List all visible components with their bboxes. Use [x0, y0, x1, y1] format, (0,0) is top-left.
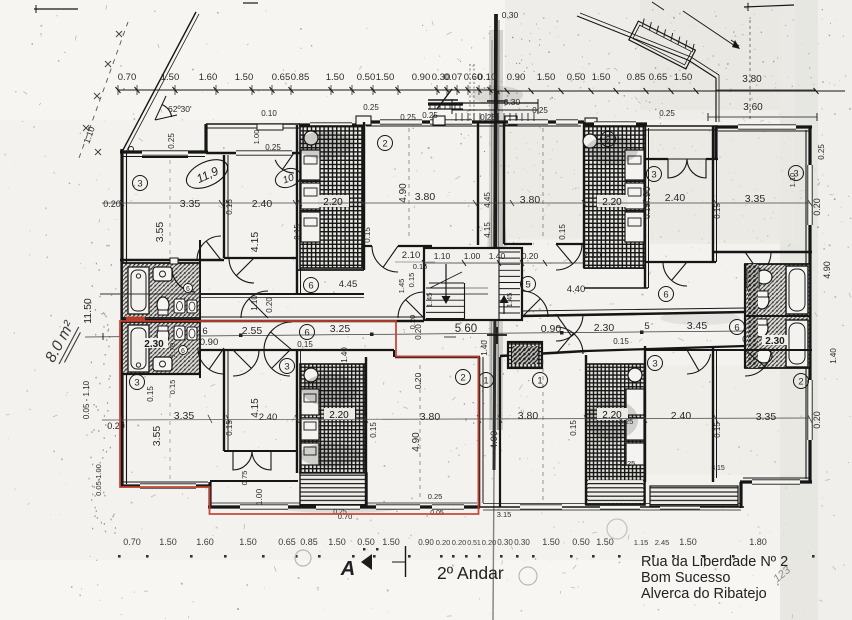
svg-text:0.20: 0.20 [265, 297, 274, 313]
svg-text:5: 5 [525, 280, 530, 291]
svg-text:1.50: 1.50 [328, 537, 346, 547]
svg-text:0.20: 0.20 [812, 198, 822, 216]
svg-text:3.15: 3.15 [497, 510, 512, 519]
svg-text:0.20: 0.20 [107, 421, 125, 431]
svg-text:1.00: 1.00 [464, 251, 481, 261]
svg-text:4.90: 4.90 [489, 431, 500, 450]
svg-text:0.15: 0.15 [613, 337, 629, 346]
svg-text:2.45: 2.45 [655, 538, 670, 547]
svg-text:6: 6 [202, 326, 207, 337]
svg-text:0.30: 0.30 [504, 97, 521, 107]
svg-text:0.50: 0.50 [567, 72, 586, 83]
svg-text:0.25: 0.25 [167, 133, 176, 149]
svg-text:0.15: 0.15 [225, 199, 234, 215]
svg-text:1.40: 1.40 [480, 340, 489, 356]
svg-text:3.35: 3.35 [174, 410, 195, 422]
svg-text:0.90: 0.90 [200, 337, 219, 348]
svg-text:2.30: 2.30 [594, 322, 615, 334]
svg-text:0.90: 0.90 [412, 72, 431, 83]
svg-text:3.80: 3.80 [742, 74, 762, 85]
svg-text:0.30: 0.30 [502, 10, 519, 20]
svg-text:3.45: 3.45 [687, 320, 708, 332]
svg-text:2.40: 2.40 [665, 192, 686, 204]
svg-text:Rua da Liberdade Nº 2: Rua da Liberdade Nº 2 [641, 554, 788, 570]
svg-text:2.30: 2.30 [144, 339, 164, 350]
svg-text:1.10: 1.10 [434, 251, 451, 261]
svg-text:1.80: 1.80 [749, 537, 767, 547]
svg-text:3.80: 3.80 [415, 191, 436, 203]
svg-text:3.60: 3.60 [743, 102, 763, 113]
svg-text:3: 3 [137, 179, 142, 190]
svg-text:3.35: 3.35 [180, 198, 201, 210]
svg-text:0.51: 0.51 [467, 540, 481, 547]
svg-text:2.10: 2.10 [583, 250, 602, 261]
svg-text:1.50: 1.50 [674, 72, 693, 83]
svg-text:0.85: 0.85 [627, 72, 646, 83]
svg-text:0.90: 0.90 [507, 72, 526, 83]
svg-text:0.20: 0.20 [414, 324, 423, 340]
svg-text:11.50: 11.50 [82, 298, 94, 324]
svg-text:6: 6 [734, 323, 739, 334]
svg-text:0.90: 0.90 [418, 538, 434, 547]
svg-text:1.45: 1.45 [505, 293, 514, 308]
svg-text:0.25: 0.25 [363, 103, 379, 112]
svg-text:0.15: 0.15 [713, 422, 722, 438]
svg-text:1: 1 [483, 376, 488, 387]
svg-text:0.15: 0.15 [407, 273, 416, 288]
svg-text:1.50: 1.50 [235, 72, 254, 83]
svg-text:1.50: 1.50 [326, 72, 345, 83]
svg-text:0.50: 0.50 [572, 537, 590, 547]
svg-text:0.20: 0.20 [413, 372, 423, 389]
svg-text:6: 6 [663, 290, 668, 301]
svg-text:2.20: 2.20 [602, 197, 622, 208]
svg-text:0.10: 0.10 [261, 109, 277, 118]
svg-text:1.60: 1.60 [199, 72, 218, 83]
svg-text:2.55: 2.55 [242, 325, 263, 337]
svg-text:1.50: 1.50 [376, 72, 395, 83]
svg-text:3.55: 3.55 [151, 426, 163, 447]
svg-text:0.65: 0.65 [272, 72, 291, 83]
svg-text:1.00: 1.00 [254, 488, 264, 505]
svg-text:4.90: 4.90 [398, 183, 409, 203]
svg-text:1.10: 1.10 [250, 295, 259, 311]
svg-text:0.05-1.00: 0.05-1.00 [94, 464, 103, 496]
svg-text:3.25: 3.25 [619, 417, 634, 426]
svg-text:3.55: 3.55 [154, 222, 166, 243]
svg-text:0.20: 0.20 [103, 199, 121, 209]
svg-text:6: 6 [304, 328, 309, 339]
svg-text:0.50: 0.50 [357, 72, 376, 83]
svg-text:2: 2 [460, 373, 465, 384]
svg-text:0.25: 0.25 [428, 492, 443, 501]
svg-text:4.90: 4.90 [411, 432, 422, 452]
svg-text:1.60: 1.60 [196, 537, 214, 547]
svg-text:0.70: 0.70 [123, 537, 141, 547]
svg-text:2: 2 [798, 377, 803, 388]
svg-text:4.15: 4.15 [249, 232, 261, 253]
svg-text:2: 2 [605, 135, 610, 146]
svg-text:1.15: 1.15 [634, 538, 649, 547]
svg-text:2.10: 2.10 [402, 250, 421, 261]
svg-text:3.15: 3.15 [711, 465, 725, 472]
svg-text:6: 6 [181, 348, 185, 355]
svg-text:0.25: 0.25 [817, 144, 826, 160]
svg-text:3: 3 [651, 170, 656, 181]
svg-text:1.50: 1.50 [537, 72, 556, 83]
svg-text:0.25: 0.25 [621, 459, 636, 468]
svg-text:0.15: 0.15 [413, 262, 428, 271]
svg-text:4.45: 4.45 [339, 279, 358, 290]
svg-text:1.50: 1.50 [592, 72, 611, 83]
svg-text:0.85: 0.85 [300, 537, 318, 547]
svg-text:0.20: 0.20 [436, 538, 451, 547]
svg-text:0.15: 0.15 [363, 227, 372, 243]
svg-text:1.45: 1.45 [425, 293, 434, 308]
svg-text:Bom Sucesso: Bom Sucesso [641, 570, 730, 586]
svg-text:0.15: 0.15 [293, 224, 302, 240]
svg-text:0.15: 0.15 [146, 386, 155, 402]
svg-text:5: 5 [644, 321, 649, 332]
svg-text:0.15: 0.15 [643, 203, 652, 219]
svg-text:4.40: 4.40 [567, 284, 586, 295]
svg-text:5 60: 5 60 [455, 323, 477, 335]
svg-text:2.40: 2.40 [259, 412, 278, 423]
svg-text:0.85: 0.85 [291, 72, 310, 83]
svg-text:0.65: 0.65 [649, 72, 668, 83]
svg-text:3.25: 3.25 [330, 323, 351, 335]
svg-text:1.70: 1.70 [168, 343, 177, 358]
svg-text:0.25: 0.25 [265, 143, 281, 152]
svg-text:2º Andar: 2º Andar [437, 563, 504, 583]
svg-text:0.10: 0.10 [478, 72, 497, 83]
svg-text:2.20: 2.20 [323, 197, 343, 208]
svg-text:3.35: 3.35 [756, 411, 777, 423]
svg-text:0.50: 0.50 [357, 537, 375, 547]
svg-text:0.05 - 1.10: 0.05 - 1.10 [82, 380, 91, 419]
svg-text:0.25: 0.25 [333, 509, 347, 516]
svg-text:0.07: 0.07 [444, 72, 463, 83]
svg-text:0.15: 0.15 [369, 422, 378, 438]
svg-text:0.20: 0.20 [522, 251, 539, 261]
svg-text:1.45: 1.45 [397, 279, 406, 294]
svg-text:62º30': 62º30' [168, 104, 192, 114]
svg-text:1.40: 1.40 [489, 251, 506, 261]
svg-text:3.80: 3.80 [420, 411, 441, 423]
svg-text:1.50: 1.50 [161, 72, 180, 83]
svg-text:0.25: 0.25 [532, 106, 548, 115]
svg-text:4.90: 4.90 [822, 261, 832, 279]
svg-text:0.25: 0.25 [422, 111, 438, 120]
svg-text:Alverca do Ribatejo: Alverca do Ribatejo [641, 586, 767, 602]
svg-text:4.45: 4.45 [483, 192, 492, 208]
svg-text:0.15: 0.15 [168, 380, 177, 395]
svg-text:1.10: 1.10 [788, 173, 797, 188]
svg-text:0.90: 0.90 [541, 323, 562, 335]
svg-text:0.15: 0.15 [225, 420, 234, 436]
svg-text:0.20: 0.20 [452, 538, 467, 547]
svg-text:6: 6 [308, 281, 313, 292]
svg-text:3.35: 3.35 [745, 193, 766, 205]
svg-text:0.65: 0.65 [278, 537, 296, 547]
svg-text:0.25: 0.25 [659, 109, 675, 118]
svg-text:6: 6 [186, 286, 190, 293]
svg-text:2.40: 2.40 [671, 410, 692, 422]
svg-text:0.15: 0.15 [297, 340, 313, 349]
svg-text:1.50: 1.50 [679, 537, 697, 547]
svg-text:3: 3 [284, 362, 289, 373]
svg-text:0.15: 0.15 [569, 420, 578, 436]
svg-text:1.50: 1.50 [542, 537, 560, 547]
svg-text:0.70: 0.70 [118, 72, 137, 83]
svg-text:1.00: 1.00 [252, 130, 261, 145]
svg-text:1.50: 1.50 [159, 537, 177, 547]
svg-text:0.20: 0.20 [812, 411, 822, 429]
svg-text:2: 2 [382, 139, 387, 150]
svg-text:1.40: 1.40 [829, 348, 838, 364]
svg-text:1.40: 1.40 [340, 347, 349, 363]
svg-text:A: A [340, 558, 355, 580]
svg-text:0.15: 0.15 [558, 224, 567, 240]
svg-text:3: 3 [134, 378, 139, 389]
svg-text:1.50: 1.50 [239, 537, 257, 547]
svg-text:4.15: 4.15 [483, 222, 492, 238]
svg-text:3.80: 3.80 [520, 194, 541, 206]
svg-text:2.30: 2.30 [765, 336, 785, 347]
svg-text:0.75: 0.75 [240, 471, 249, 486]
svg-text:1: 1 [537, 376, 542, 387]
svg-text:0.30: 0.30 [514, 538, 530, 547]
svg-text:3: 3 [652, 359, 657, 370]
svg-text:0.30: 0.30 [497, 538, 513, 547]
svg-text:0.20: 0.20 [482, 538, 497, 547]
svg-text:2.40: 2.40 [252, 198, 273, 210]
svg-text:4.90: 4.90 [642, 186, 653, 206]
svg-text:4.15: 4.15 [250, 398, 261, 418]
svg-text:0.15: 0.15 [713, 203, 722, 219]
svg-text:1.50: 1.50 [596, 537, 614, 547]
svg-text:1.50: 1.50 [382, 537, 400, 547]
svg-text:3.80: 3.80 [518, 410, 539, 422]
